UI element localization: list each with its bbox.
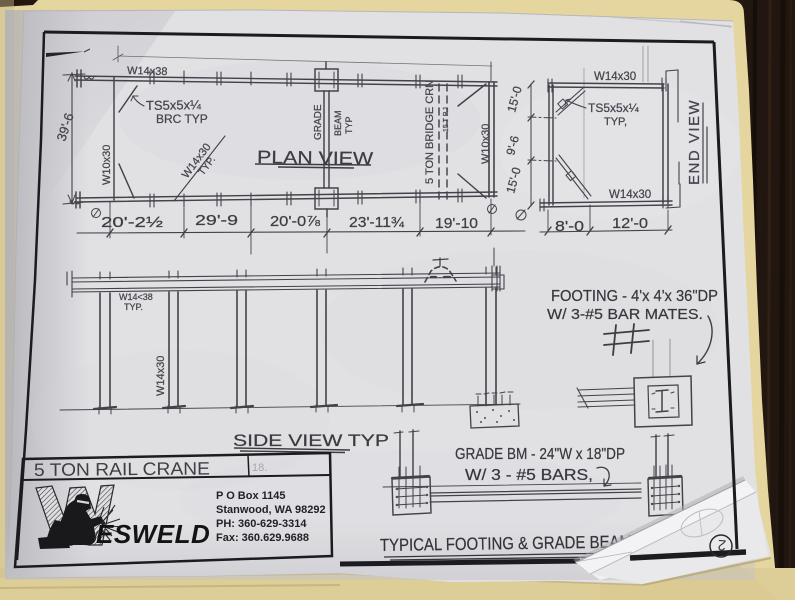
svg-text:W/ 3-#5 BAR MATES.: W/ 3-#5 BAR MATES. (547, 306, 703, 323)
svg-text:W14x30: W14x30 (609, 189, 651, 201)
svg-text:PH: 360-629-3314: PH: 360-629-3314 (216, 518, 307, 530)
svg-text:Fax: 360.629.9688: Fax: 360.629.9688 (216, 532, 309, 544)
svg-text:BEAM: BEAM (333, 110, 343, 136)
svg-text:5 TON RAIL CRANE: 5 TON RAIL CRANE (34, 458, 210, 480)
svg-text:GRADE: GRADE (313, 104, 324, 140)
svg-text:18.: 18. (252, 462, 267, 474)
svg-text:FOOTING - 4'x 4'x 36"DP: FOOTING - 4'x 4'x 36"DP (551, 288, 718, 305)
svg-text:P O Box 1145: P O Box 1145 (216, 490, 286, 502)
svg-text:W10x30: W10x30 (480, 124, 492, 164)
svg-text:20'-0⅞: 20'-0⅞ (270, 213, 321, 230)
svg-text:W14x38: W14x38 (127, 65, 168, 78)
svg-text:SIDE VIEW TYP: SIDE VIEW TYP (233, 431, 389, 450)
svg-text:W14<38: W14<38 (119, 292, 153, 302)
svg-text:ESWELD: ESWELD (96, 519, 210, 549)
svg-text:15 T P.J: 15 T P.J (443, 107, 450, 132)
svg-text:2: 2 (717, 536, 727, 554)
svg-text:TYP.: TYP. (124, 302, 143, 312)
svg-text:TYP: TYP (344, 116, 354, 134)
svg-text:TS5x5x¼: TS5x5x¼ (146, 97, 201, 113)
svg-text:BRC TYP: BRC TYP (156, 112, 208, 126)
svg-text:20'-2½: 20'-2½ (101, 214, 164, 231)
svg-text:TYP,: TYP, (604, 116, 627, 128)
svg-text:W14x30: W14x30 (155, 356, 167, 396)
svg-text:29'-9: 29'-9 (195, 212, 238, 229)
svg-text:5 TON BRIDGE CRN: 5 TON BRIDGE CRN (424, 80, 436, 184)
svg-text:W/ 3 - #5 BARS,: W/ 3 - #5 BARS, (465, 467, 593, 484)
svg-text:23'-11¾: 23'-11¾ (349, 214, 405, 231)
svg-text:8'-0: 8'-0 (555, 218, 584, 235)
svg-text:12'-0: 12'-0 (612, 215, 648, 232)
svg-text:GRADE BM - 24"W x 18"DP: GRADE BM - 24"W x 18"DP (455, 446, 625, 463)
svg-text:TS5x5x¼: TS5x5x¼ (588, 101, 640, 115)
svg-text:Stanwood, WA 98292: Stanwood, WA 98292 (216, 504, 326, 516)
svg-text:W10x30: W10x30 (101, 145, 113, 185)
svg-text:W14x30: W14x30 (594, 71, 636, 83)
svg-text:END VIEW: END VIEW (686, 99, 703, 185)
svg-text:19'-10: 19'-10 (435, 215, 478, 232)
